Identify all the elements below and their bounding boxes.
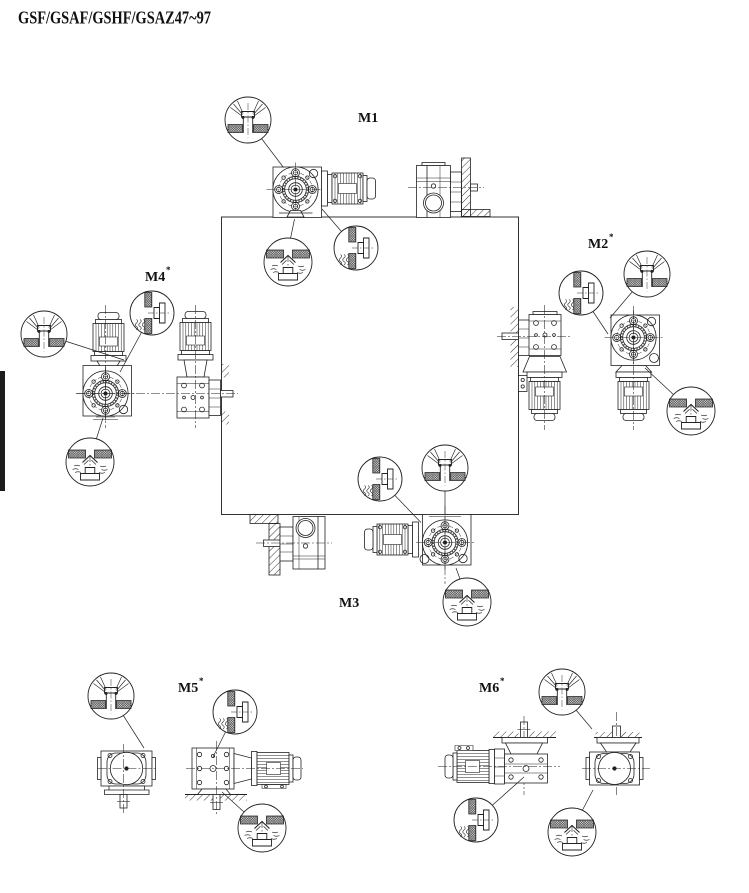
svg-text:M5: M5: [178, 681, 198, 696]
svg-text:*: *: [609, 232, 614, 242]
svg-text:GSF/GSAF/GSHF/GSAZ47~97: GSF/GSAF/GSHF/GSAZ47~97: [18, 8, 211, 28]
svg-text:M2: M2: [588, 237, 608, 252]
svg-text:M6: M6: [479, 681, 499, 696]
svg-text:*: *: [199, 676, 204, 686]
svg-text:M4: M4: [145, 270, 165, 285]
svg-text:*: *: [166, 265, 171, 275]
svg-text:M1: M1: [358, 111, 378, 126]
svg-text:*: *: [500, 676, 505, 686]
svg-text:M3: M3: [339, 596, 359, 611]
